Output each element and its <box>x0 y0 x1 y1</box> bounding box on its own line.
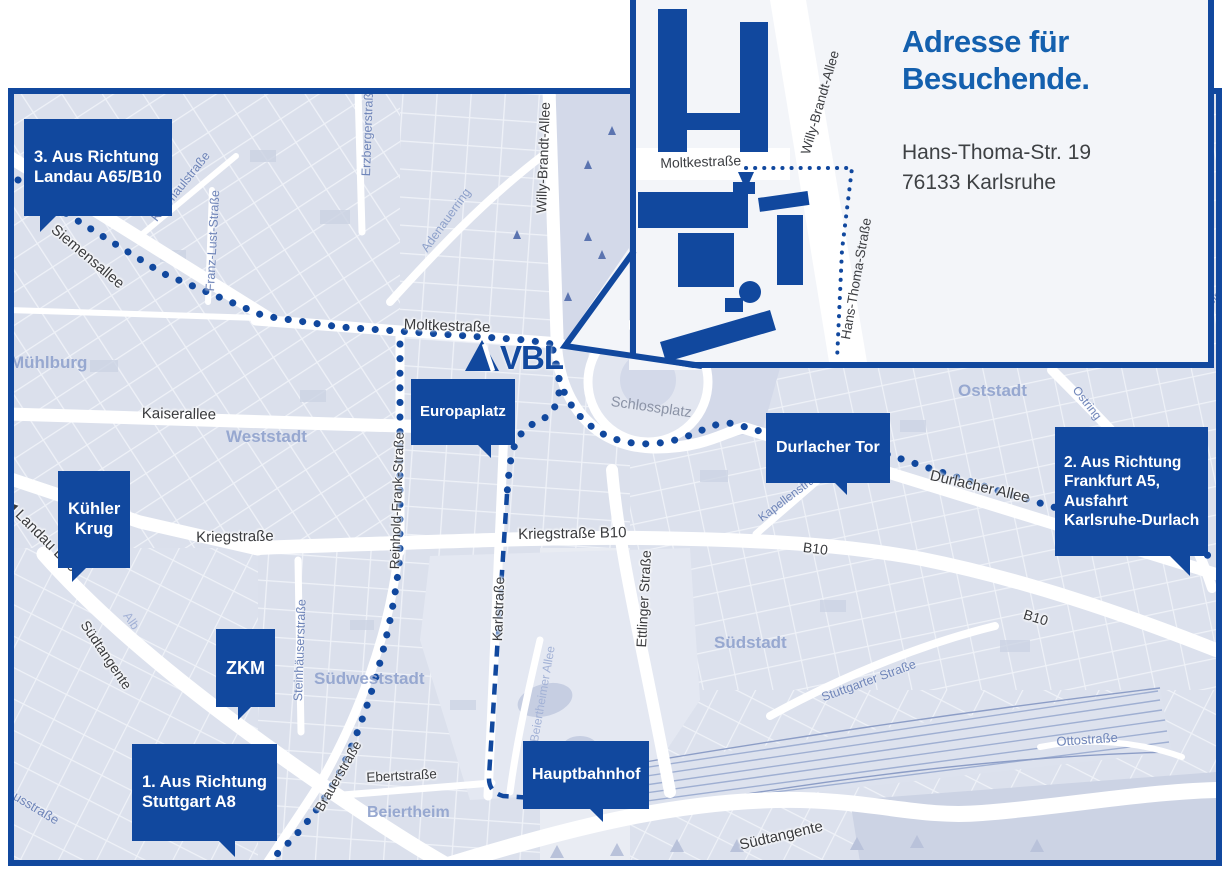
vbl-directions-map: Siemensallee Kußmaulstraße Franz-Lust-St… <box>0 0 1230 874</box>
street-label: B10 <box>802 540 828 557</box>
district-label: Südstadt <box>714 633 787 653</box>
badge-label: Durlacher Tor <box>776 439 880 456</box>
badge-label: Kühler Krug <box>68 500 120 539</box>
badge-tail <box>1169 555 1190 576</box>
street-label: Willy-Brandt-Allee <box>534 102 552 214</box>
street-label: Kriegstraße <box>196 529 274 545</box>
badge-label: 3. Aus Richtung Landau A65/B10 <box>34 148 162 187</box>
badge-tail <box>477 444 491 458</box>
badge-label: Hauptbahnhof <box>532 766 640 783</box>
street-label: Moltkestraße <box>403 317 490 335</box>
district-label: Südweststadt <box>314 669 425 689</box>
vbl-pyramid-icon <box>464 339 500 373</box>
vbl-logo: VBL <box>464 339 563 373</box>
street-label: Karlstraße <box>490 576 506 641</box>
badge-route1-stuttgart: 1. Aus Richtung Stuttgart A8 <box>132 744 277 841</box>
inset-address: Hans-Thoma-Str. 19 76133 Karlsruhe <box>902 138 1091 198</box>
badge-label: ZKM <box>226 658 265 678</box>
badge-durlacher-tor: Durlacher Tor <box>766 413 890 483</box>
badge-route2-frankfurt: 2. Aus Richtung Frankfurt A5, Ausfahrt K… <box>1055 427 1208 556</box>
badge-label: 2. Aus Richtung Frankfurt A5, Ausfahrt K… <box>1064 454 1199 529</box>
address-inset-panel: Moltkestraße Willy-Brandt-Allee Hans-Tho… <box>630 0 1214 368</box>
street-label: Erzbergerstraße <box>360 88 376 176</box>
badge-europaplatz: Europaplatz <box>411 379 515 445</box>
inset-title: Adresse für Besuchende. <box>902 24 1089 97</box>
badge-zkm: ZKM <box>216 629 275 707</box>
district-label: Beiertheim <box>367 804 450 822</box>
badge-tail <box>589 808 603 822</box>
badge-kuehler-krug: Kühler Krug <box>58 471 130 568</box>
street-label: Kriegstraße B10 <box>518 525 627 542</box>
badge-hauptbahnhof: Hauptbahnhof <box>523 741 649 809</box>
district-label: Weststadt <box>226 427 307 447</box>
badge-tail <box>238 706 252 720</box>
badge-label: Europaplatz <box>420 403 506 420</box>
district-label: Oststadt <box>958 381 1027 401</box>
badge-label: 1. Aus Richtung Stuttgart A8 <box>142 773 267 812</box>
badge-tail <box>834 482 847 495</box>
badge-tail <box>72 567 87 582</box>
inset-street-label: Moltkestraße <box>660 152 741 171</box>
schlossgarten-park <box>556 92 632 342</box>
badge-route3-landau: 3. Aus Richtung Landau A65/B10 <box>24 119 172 216</box>
street-label: Kaiserallee <box>142 406 216 422</box>
vbl-logo-text: VBL <box>500 343 563 373</box>
district-label: Mühlburg <box>10 353 87 373</box>
badge-tail <box>218 840 235 857</box>
badge-tail <box>40 215 57 232</box>
